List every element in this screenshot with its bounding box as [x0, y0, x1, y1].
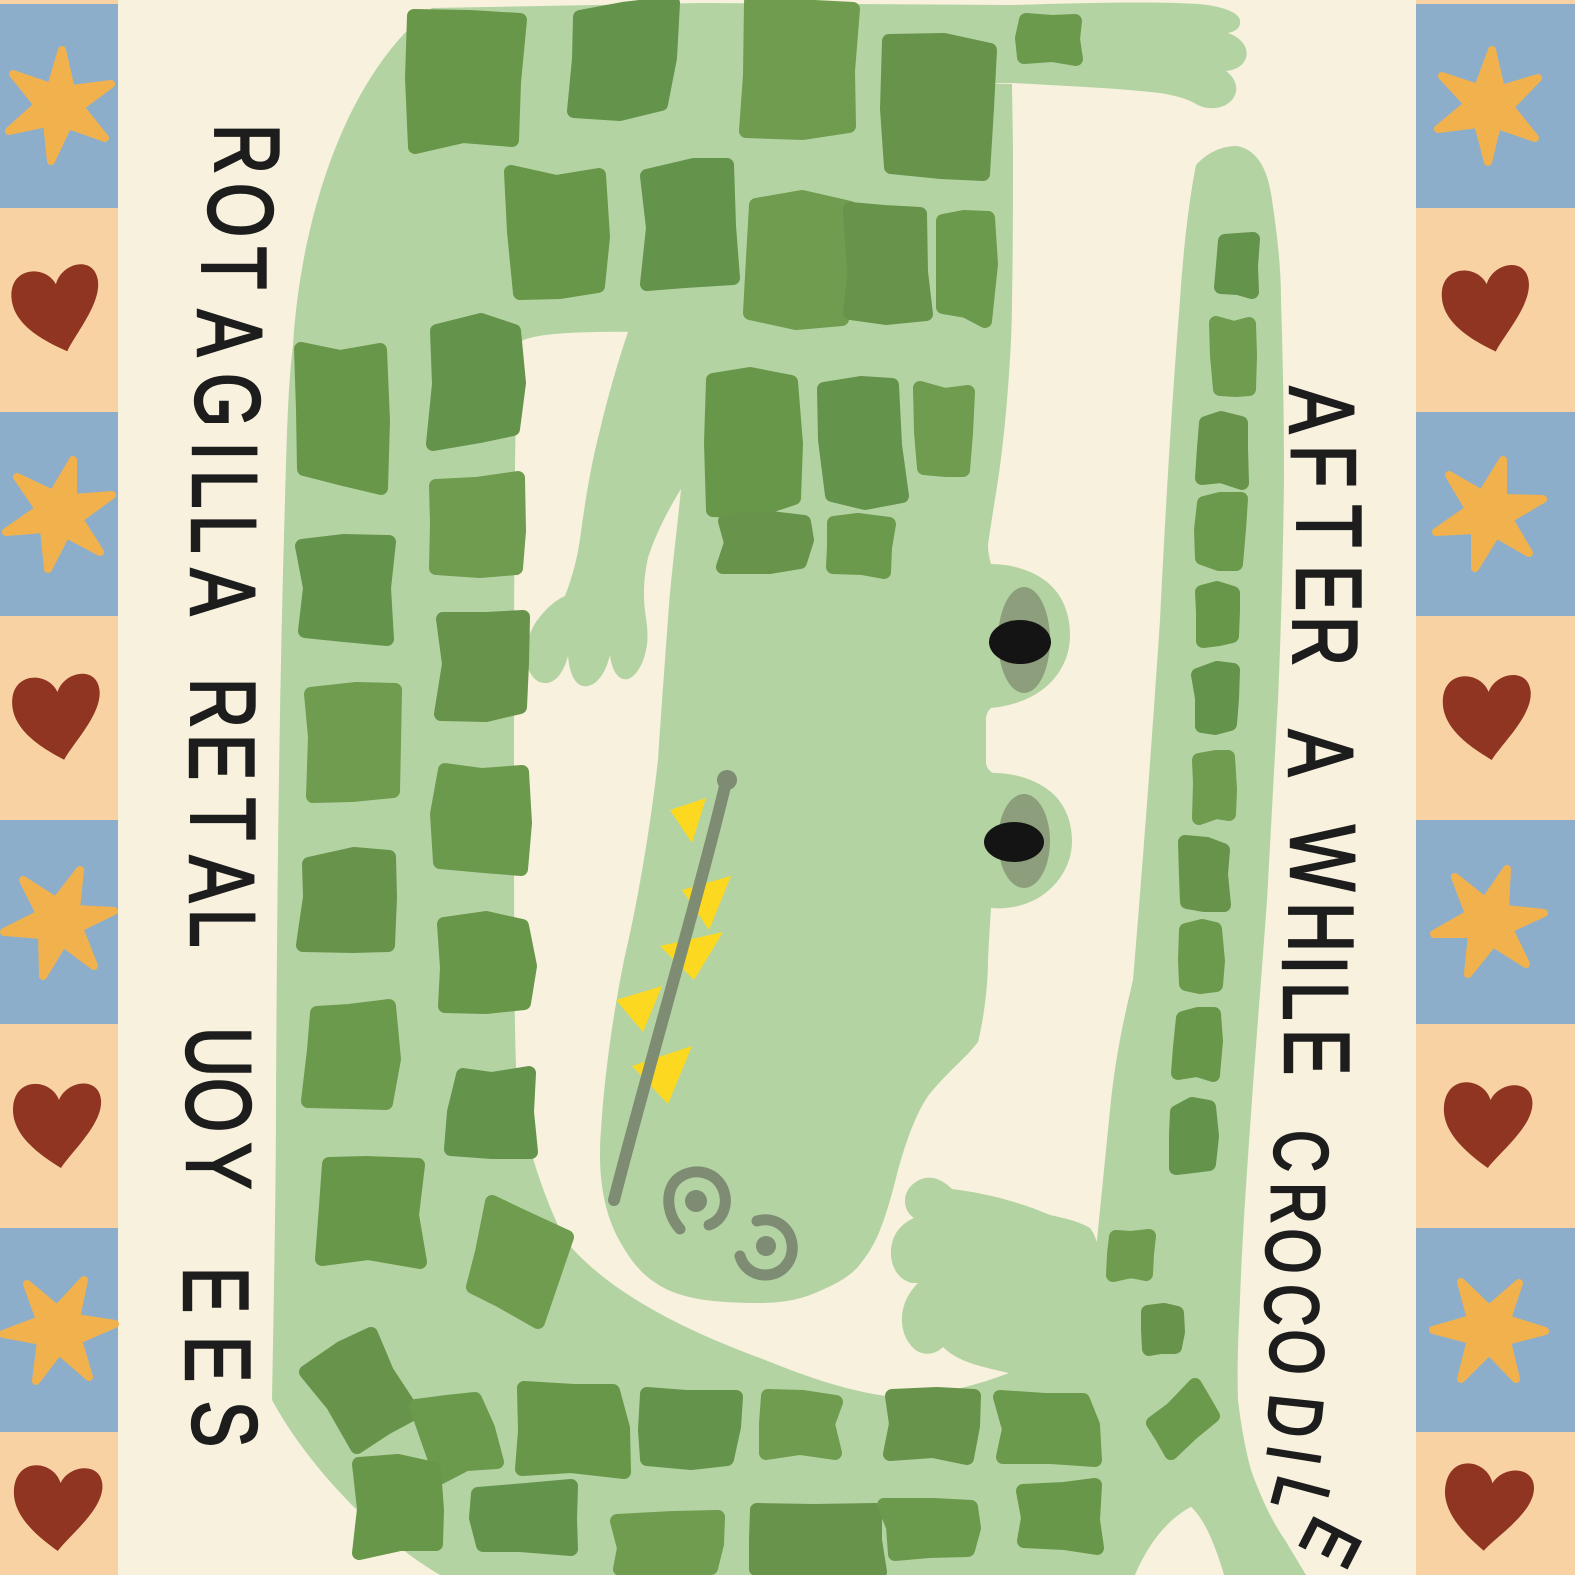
svg-text:I: I: [1263, 955, 1365, 974]
svg-text:U: U: [167, 1027, 269, 1077]
svg-text:A: A: [178, 310, 280, 357]
svg-text:T: T: [182, 247, 284, 290]
svg-text:T: T: [1277, 505, 1379, 548]
svg-text:F: F: [1272, 445, 1374, 488]
svg-text:I: I: [173, 441, 275, 460]
svg-text:L: L: [172, 515, 274, 554]
svg-text:O: O: [1249, 1228, 1334, 1274]
svg-text:O: O: [1253, 1327, 1340, 1376]
svg-text:Y: Y: [167, 1143, 269, 1190]
svg-text:A: A: [171, 569, 273, 616]
svg-text:L: L: [1264, 982, 1366, 1021]
svg-text:A: A: [1270, 387, 1372, 434]
svg-text:H: H: [1269, 902, 1371, 952]
svg-text:G: G: [176, 373, 278, 427]
svg-text:R: R: [195, 124, 297, 174]
svg-text:T: T: [171, 798, 273, 841]
svg-text:E: E: [170, 734, 272, 781]
svg-text:E: E: [164, 1267, 266, 1314]
svg-text:O: O: [167, 1078, 269, 1132]
svg-text:C: C: [1248, 1283, 1334, 1328]
svg-text:R: R: [171, 678, 273, 728]
svg-text:E: E: [1265, 1029, 1367, 1076]
svg-text:W: W: [1271, 825, 1373, 891]
svg-text:L: L: [171, 909, 273, 948]
svg-text:O: O: [189, 183, 291, 237]
svg-text:R: R: [1273, 616, 1375, 666]
svg-text:R: R: [1255, 1182, 1339, 1224]
svg-text:E: E: [1277, 565, 1379, 612]
svg-text:C: C: [1258, 1130, 1342, 1172]
svg-text:S: S: [173, 1401, 275, 1448]
svg-text:L: L: [173, 470, 275, 509]
svg-text:A: A: [170, 856, 272, 903]
svg-text:A: A: [1269, 730, 1371, 777]
svg-text:E: E: [166, 1336, 268, 1383]
svg-text:D: D: [1250, 1391, 1338, 1441]
